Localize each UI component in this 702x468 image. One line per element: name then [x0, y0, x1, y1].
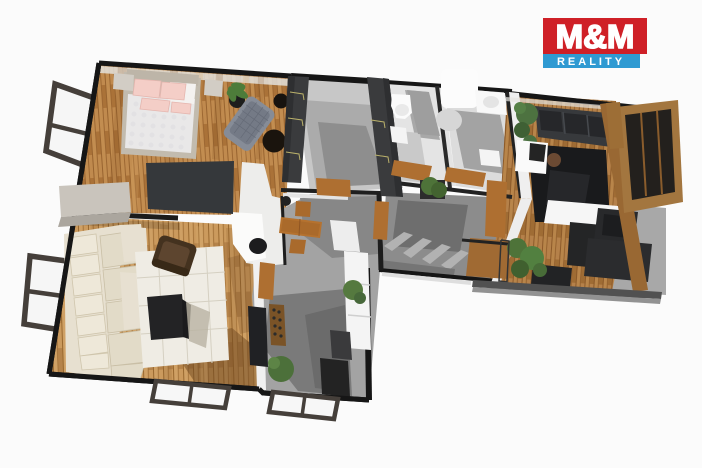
svg-text:REALITY: REALITY — [557, 56, 625, 68]
svg-text:M&M: M&M — [556, 18, 635, 55]
